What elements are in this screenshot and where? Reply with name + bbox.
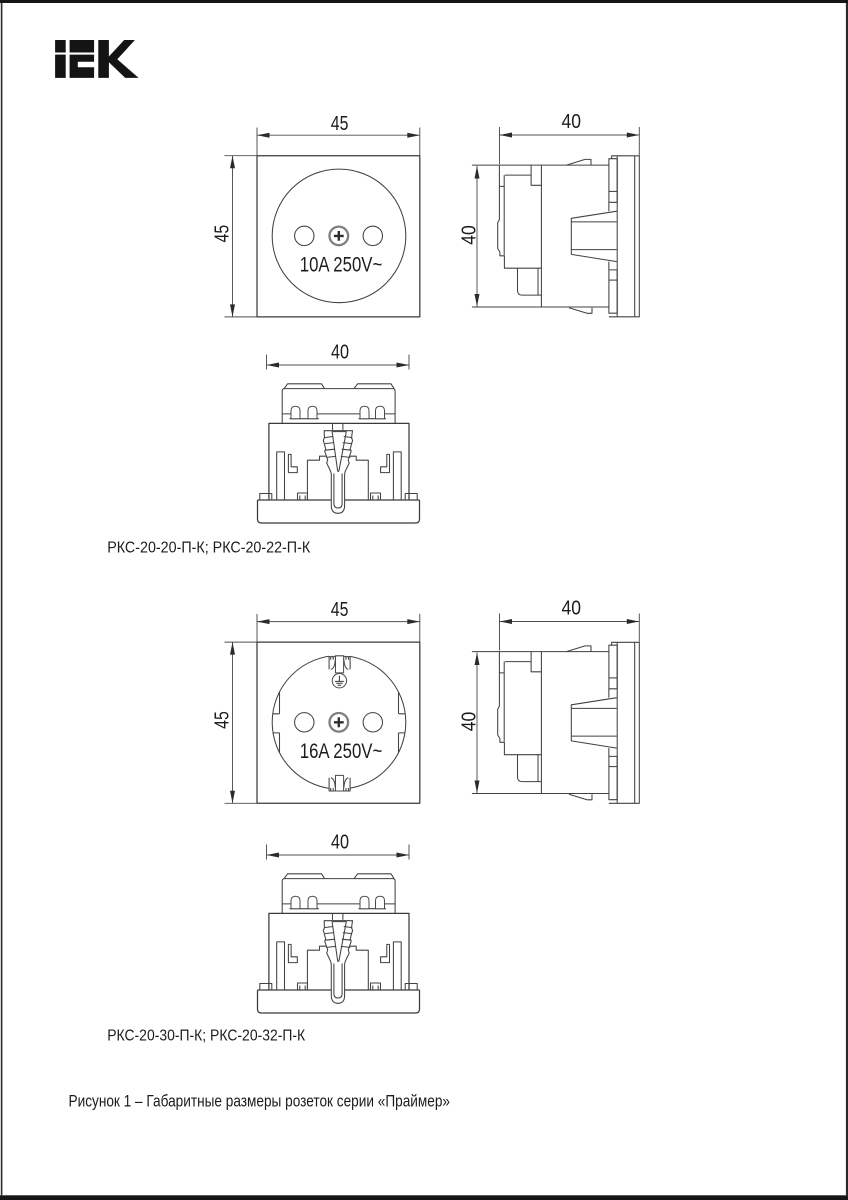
- svg-text:10A 250V~: 10A 250V~: [300, 253, 383, 277]
- svg-text:45: 45: [212, 225, 234, 243]
- svg-text:РКС-20-20-П-К; РКС-20-22-П-К: РКС-20-20-П-К; РКС-20-22-П-К: [107, 540, 311, 557]
- svg-text:Рисунок 1 – Габаритные размеры: Рисунок 1 – Габаритные размеры розеток с…: [69, 1092, 451, 1110]
- svg-text:45: 45: [331, 599, 349, 621]
- svg-text:45: 45: [331, 113, 349, 135]
- svg-text:45: 45: [212, 711, 234, 729]
- svg-text:16A 250V~: 16A 250V~: [300, 739, 383, 763]
- svg-text:РКС-20-30-П-К; РКС-20-32-П-К: РКС-20-30-П-К; РКС-20-32-П-К: [107, 1027, 306, 1044]
